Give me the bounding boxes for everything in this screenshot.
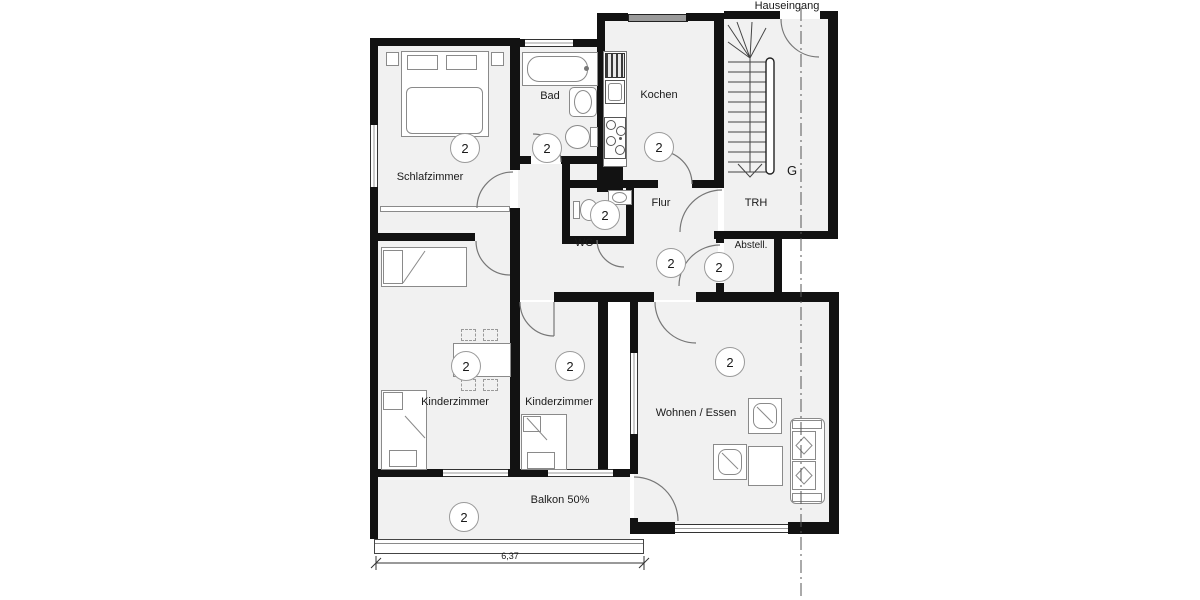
sofa-armrest xyxy=(792,493,822,502)
stove-burner xyxy=(606,136,616,146)
wall xyxy=(630,522,675,534)
label-hauseingang: Hauseingang xyxy=(755,0,820,12)
wall xyxy=(370,469,443,477)
wall xyxy=(510,38,520,170)
label-schlafzimmer: Schlafzimmer xyxy=(397,171,464,183)
wall xyxy=(597,13,628,21)
window-wohnen-south xyxy=(675,524,788,533)
stove-burner xyxy=(615,145,625,155)
window-bad xyxy=(525,39,573,47)
label-bad: Bad xyxy=(540,90,560,102)
balcony-parapet-line xyxy=(375,543,643,544)
unit-badge-kinderzimmer-2: 2 xyxy=(555,351,585,381)
sofa-cushion xyxy=(792,461,816,490)
label-kinderzimmer-2: Kinderzimmer xyxy=(525,396,593,408)
floor-plan: Hauseingang Schlafzimmer Bad Kochen WC F… xyxy=(0,0,1200,600)
wall xyxy=(828,13,838,239)
pillow xyxy=(383,392,403,410)
bad-toilet-tank xyxy=(590,127,598,147)
pillow xyxy=(523,416,541,432)
chair xyxy=(483,379,498,391)
wall xyxy=(714,13,724,188)
wall xyxy=(510,208,520,469)
wall xyxy=(630,302,638,353)
unit-badge-abstell: 2 xyxy=(704,252,734,282)
unit-badge-schlafzimmer: 2 xyxy=(450,133,480,163)
wall xyxy=(716,239,724,243)
wardrobe xyxy=(380,206,510,212)
unit-badge-kochen: 2 xyxy=(644,132,674,162)
blanket xyxy=(406,87,483,134)
wc-sink-basin xyxy=(612,192,627,203)
stove-knob xyxy=(619,137,622,140)
unit-badge-wc: 2 xyxy=(590,200,620,230)
kitchen-cabinet xyxy=(605,53,625,78)
bathtub-drain xyxy=(584,66,589,71)
bathtub-inner xyxy=(527,56,588,82)
nightstand xyxy=(491,52,504,66)
dimension-value: 6,37 xyxy=(501,551,519,561)
unit-badge-wohnen: 2 xyxy=(715,347,745,377)
kitchen-sink-basin xyxy=(608,83,622,101)
unit-badge-bad: 2 xyxy=(532,133,562,163)
window-wohnen-west xyxy=(630,353,638,434)
wall xyxy=(370,38,378,125)
wall xyxy=(724,11,780,19)
wall xyxy=(630,434,638,474)
label-wohnen-essen: Wohnen / Essen xyxy=(656,407,737,419)
pillow xyxy=(407,55,438,70)
pillow xyxy=(446,55,477,70)
wall xyxy=(510,292,520,302)
label-flur: Flur xyxy=(652,197,671,209)
wall xyxy=(598,302,608,469)
unit-badge-flur: 2 xyxy=(656,248,686,278)
wall xyxy=(370,38,520,46)
window-kochen xyxy=(628,14,688,22)
chair xyxy=(461,329,476,341)
wall xyxy=(613,469,630,477)
pillow xyxy=(383,250,403,284)
wall xyxy=(562,156,570,244)
wall xyxy=(623,180,658,188)
sofa-cushion xyxy=(792,431,816,460)
window-kinderzimmer-1 xyxy=(443,469,508,477)
nightstand xyxy=(386,52,399,66)
wall xyxy=(554,292,654,302)
label-abstell: Abstell. xyxy=(735,240,768,251)
sofa-armrest xyxy=(792,420,822,429)
stove-burner xyxy=(616,126,626,136)
window-kinderzimmer-2 xyxy=(548,469,613,477)
label-wc: WC xyxy=(575,237,593,249)
wall xyxy=(696,292,839,302)
chair xyxy=(483,329,498,341)
pillow xyxy=(527,452,555,469)
label-kochen: Kochen xyxy=(640,89,677,101)
wall xyxy=(508,469,548,477)
coffee-table xyxy=(748,446,783,486)
wall xyxy=(516,156,531,164)
stove-burner xyxy=(606,120,616,130)
wall xyxy=(788,522,839,534)
armchair-seat xyxy=(753,403,777,429)
wall xyxy=(624,236,634,244)
label-balkon: Balkon 50% xyxy=(531,494,590,506)
floor-trh xyxy=(724,19,828,235)
wall xyxy=(370,233,475,241)
unit-badge-kinderzimmer-1: 2 xyxy=(451,351,481,381)
bad-sink-basin xyxy=(574,90,592,114)
wc-toilet-tank xyxy=(573,201,580,219)
bad-toilet-bowl xyxy=(565,125,590,149)
armchair-seat xyxy=(718,449,742,475)
floor-balkon xyxy=(378,477,630,539)
label-grid-axis: G xyxy=(787,163,797,178)
label-trh: TRH xyxy=(745,197,768,209)
wall xyxy=(829,292,839,534)
unit-badge-balkon: 2 xyxy=(449,502,479,532)
label-kinderzimmer-1: Kinderzimmer xyxy=(421,396,489,408)
window-schlafzimmer xyxy=(370,125,378,187)
pillow xyxy=(389,450,417,467)
